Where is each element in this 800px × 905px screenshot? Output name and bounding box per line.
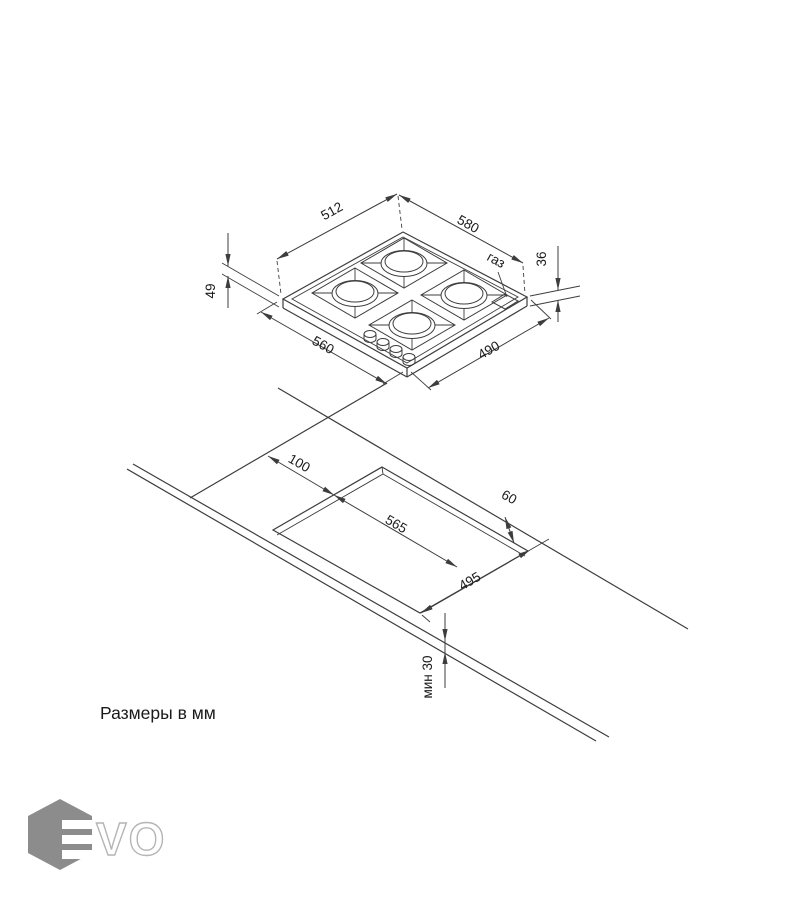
front-min-distance-label: мин 30 <box>420 655 435 698</box>
logo-e-bars <box>62 820 92 859</box>
units-note: Размеры в мм <box>100 703 216 723</box>
technical-drawing-page: 512 580 газ 36 49 <box>0 0 800 900</box>
background <box>0 0 800 900</box>
dimension-drawing: 512 580 газ 36 49 <box>0 0 800 900</box>
hob-height-right-label: 36 <box>534 251 549 266</box>
logo-outline-text: VO <box>96 813 166 865</box>
hob-height-left-label: 49 <box>203 283 218 298</box>
